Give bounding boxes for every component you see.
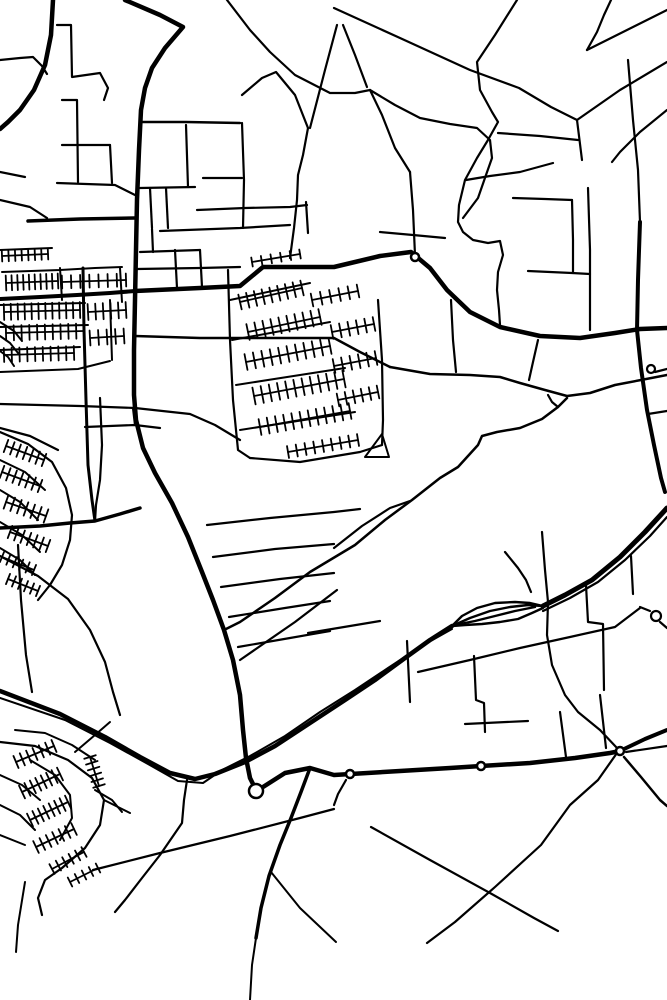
road <box>140 250 200 252</box>
block-stroke <box>311 294 313 307</box>
block-stroke <box>369 387 372 400</box>
road <box>242 123 244 228</box>
road <box>57 25 108 100</box>
road <box>83 268 95 521</box>
road <box>334 8 577 120</box>
road <box>631 556 633 594</box>
block-street <box>312 291 358 300</box>
road <box>238 631 330 647</box>
block-stroke <box>23 275 24 290</box>
road <box>380 232 445 238</box>
road <box>137 267 240 269</box>
block-stroke <box>90 331 91 346</box>
road <box>378 300 383 445</box>
road <box>0 200 47 218</box>
block-stroke <box>29 275 30 290</box>
road <box>637 222 665 492</box>
block-stroke <box>337 394 340 407</box>
road <box>95 398 102 521</box>
road <box>140 122 240 123</box>
road <box>655 369 667 372</box>
road <box>104 800 130 813</box>
block-stroke <box>103 303 104 319</box>
road <box>221 573 334 587</box>
block-stroke <box>88 304 89 320</box>
road <box>334 780 346 805</box>
block-stroke <box>95 304 96 320</box>
block-street <box>4 310 80 312</box>
road <box>543 508 667 606</box>
road <box>62 100 78 182</box>
city-blocks-layer <box>0 249 379 887</box>
road <box>256 768 310 938</box>
road <box>135 252 667 338</box>
road <box>624 757 667 806</box>
road <box>250 938 256 1000</box>
road <box>110 145 112 183</box>
block-stroke <box>353 390 356 403</box>
road <box>213 544 334 557</box>
block-street <box>332 324 374 332</box>
street-map-canvas <box>0 0 667 1000</box>
road <box>240 590 337 660</box>
road <box>0 404 240 440</box>
road <box>587 0 611 50</box>
road <box>528 271 590 274</box>
roundabout-junction <box>616 747 624 755</box>
block-stroke <box>296 445 298 457</box>
block-stroke <box>98 330 99 345</box>
road <box>290 128 308 258</box>
road <box>308 621 380 633</box>
road <box>648 411 667 414</box>
road <box>612 110 667 162</box>
road <box>586 585 604 690</box>
road <box>0 291 135 299</box>
map-viewport <box>0 0 667 1000</box>
road <box>334 501 410 548</box>
block-stroke <box>357 434 359 446</box>
block-stroke <box>280 253 281 262</box>
block-stroke <box>6 276 7 291</box>
road <box>572 200 573 273</box>
road <box>410 172 415 255</box>
road <box>529 340 538 380</box>
road <box>513 198 572 200</box>
roundabout-junction <box>411 253 419 261</box>
road <box>85 425 160 428</box>
road <box>0 172 25 177</box>
road <box>0 742 104 915</box>
block-stroke <box>35 274 36 289</box>
road <box>600 695 606 748</box>
block-stroke <box>110 303 111 319</box>
block-street <box>252 254 300 262</box>
block-stroke <box>322 440 324 452</box>
road <box>152 229 153 252</box>
road <box>224 398 567 630</box>
road <box>2 267 122 272</box>
block-stroke <box>17 275 18 290</box>
road <box>28 218 135 221</box>
road <box>407 641 410 702</box>
block-stroke <box>115 329 116 344</box>
block-street <box>260 411 350 427</box>
block-stroke <box>339 437 341 449</box>
road <box>588 188 590 330</box>
road <box>186 125 188 187</box>
road <box>150 188 152 228</box>
road <box>93 809 334 870</box>
road <box>640 607 650 611</box>
road <box>560 712 566 757</box>
block-stroke <box>329 290 331 303</box>
block-stroke <box>107 330 108 345</box>
road <box>207 509 360 525</box>
block-stroke <box>304 443 306 455</box>
road <box>160 225 290 231</box>
block-stroke <box>331 439 333 451</box>
road <box>474 656 485 732</box>
road <box>505 552 531 592</box>
block-stroke <box>126 302 127 318</box>
road <box>16 882 25 952</box>
road <box>465 721 528 724</box>
block-stroke <box>11 275 12 290</box>
block-street <box>338 392 378 400</box>
block-stroke <box>320 292 322 305</box>
block-stroke <box>40 274 41 289</box>
road <box>200 250 202 287</box>
road <box>306 202 308 233</box>
road <box>271 872 336 942</box>
block-stroke <box>348 436 350 448</box>
block-stroke <box>377 386 380 399</box>
road <box>498 133 578 140</box>
block-street <box>6 281 58 283</box>
road <box>418 608 640 672</box>
road <box>166 188 168 228</box>
block-stroke <box>345 392 348 405</box>
road <box>0 835 25 845</box>
roads-layer <box>0 0 667 1000</box>
block-stroke <box>287 446 289 458</box>
road <box>140 187 195 188</box>
block-stroke <box>58 274 59 289</box>
block-stroke <box>348 286 350 299</box>
roundabout-junction <box>249 784 263 798</box>
road <box>466 163 553 180</box>
block-stroke <box>361 389 364 402</box>
road <box>57 183 137 196</box>
block-stroke <box>270 254 271 263</box>
road <box>0 0 53 129</box>
block-stroke <box>338 288 340 301</box>
road <box>660 622 667 628</box>
road <box>577 62 667 120</box>
block-street <box>4 353 74 355</box>
road <box>229 601 330 617</box>
road <box>548 395 558 407</box>
road <box>343 25 367 87</box>
road <box>115 780 187 912</box>
block-stroke <box>261 256 262 265</box>
block-stroke <box>52 274 53 289</box>
road <box>0 361 110 372</box>
block-stroke <box>46 274 47 289</box>
road <box>390 367 667 396</box>
road <box>0 626 452 779</box>
block-street <box>334 358 376 366</box>
road <box>95 790 122 812</box>
road <box>175 250 177 288</box>
block-stroke <box>357 285 359 298</box>
roundabout-junction <box>651 611 661 621</box>
road <box>0 556 120 715</box>
road <box>458 0 517 325</box>
block-stroke <box>124 329 125 344</box>
block-street <box>254 379 344 396</box>
block-stroke <box>313 442 315 454</box>
road <box>120 268 122 302</box>
roundabout-junction <box>647 365 655 373</box>
road <box>242 72 308 128</box>
road <box>371 827 558 931</box>
block-stroke <box>251 258 252 267</box>
road <box>427 753 617 943</box>
road <box>197 205 307 210</box>
road <box>310 25 337 128</box>
road <box>451 300 456 372</box>
block-stroke <box>299 250 300 259</box>
block-stroke <box>118 302 119 318</box>
roundabout-junction <box>477 762 485 770</box>
block-street <box>88 310 126 312</box>
road <box>125 0 254 786</box>
road <box>370 90 492 218</box>
roundabout-junction <box>346 770 354 778</box>
